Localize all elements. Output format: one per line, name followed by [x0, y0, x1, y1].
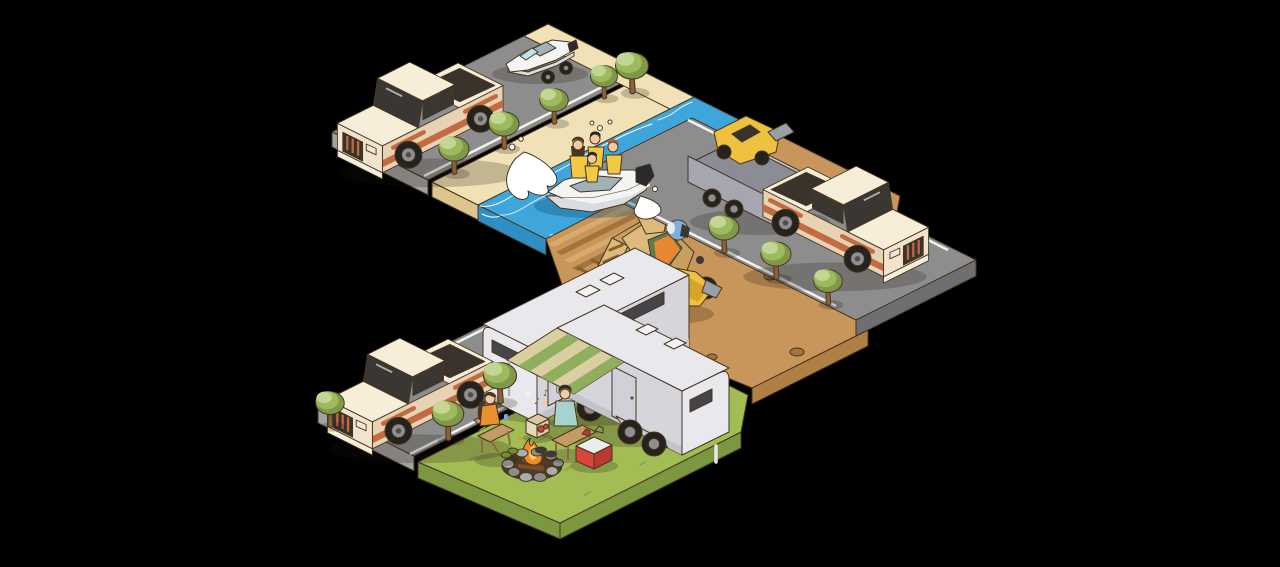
passenger-head — [608, 142, 618, 152]
woman-shoe — [501, 452, 511, 458]
prop-spray — [653, 187, 658, 192]
splash-droplet — [509, 144, 515, 150]
music-note: ♪ — [543, 389, 549, 399]
radio-speaker — [544, 424, 549, 429]
music-note: ♪ — [534, 397, 540, 407]
man-hand — [543, 400, 548, 405]
spark — [519, 437, 522, 440]
stone — [790, 348, 804, 356]
splash-droplet — [590, 121, 594, 125]
passenger-head — [590, 134, 600, 144]
woman-shirt — [480, 404, 500, 426]
splash-droplet — [608, 120, 612, 124]
passenger-head — [588, 155, 597, 164]
marshmallow — [526, 391, 531, 396]
man-head — [560, 389, 570, 399]
isometric-outdoor-recreation-illustration: ♪ ♪ — [0, 0, 1280, 567]
splash-droplet — [519, 137, 524, 142]
splash-droplet — [598, 126, 603, 131]
illustration-canvas: ♪ ♪ — [0, 0, 1280, 567]
passenger-head — [573, 140, 583, 150]
life-vest — [606, 155, 622, 174]
life-vest — [585, 166, 599, 182]
door-handle — [630, 396, 633, 399]
man-shirt — [554, 401, 578, 426]
helmet-stripe — [667, 222, 675, 234]
man-shoe — [536, 447, 547, 453]
water-bottle — [504, 414, 508, 421]
man-shoe — [546, 451, 557, 457]
rider-glove — [697, 257, 704, 264]
